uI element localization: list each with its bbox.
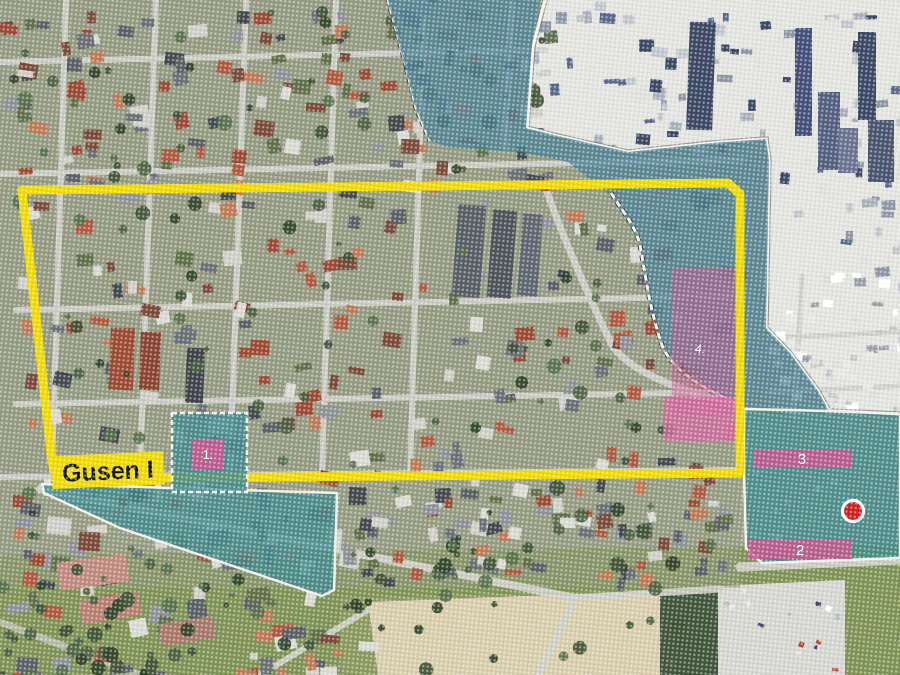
site-map-svg: 4. 1. 3 2 Gusen I [0,0,900,675]
aerial-map-photo: 4. 1. 3 2 Gusen I [0,0,900,675]
halftone-print-overlay [0,0,900,675]
